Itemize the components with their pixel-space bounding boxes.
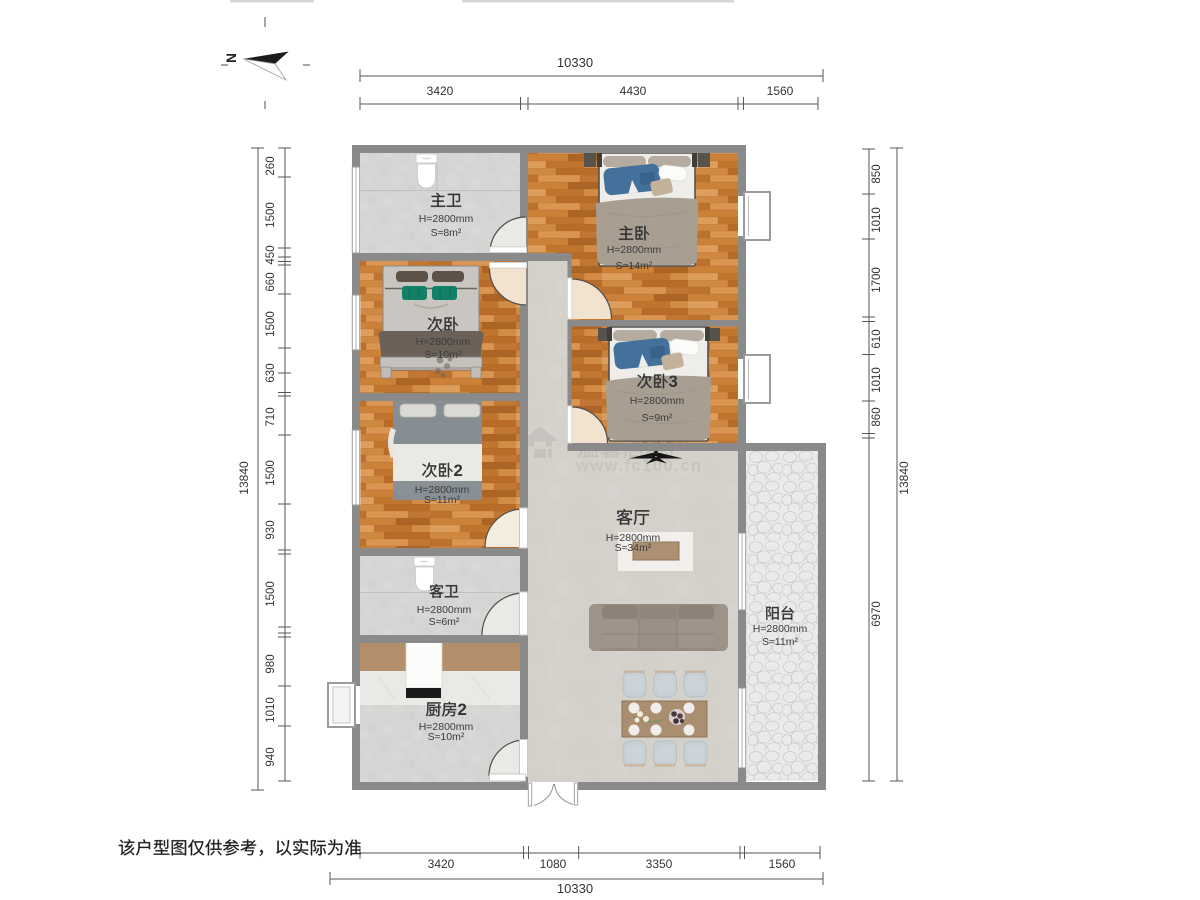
svg-text:S≈10m²: S≈10m² [428, 731, 465, 743]
svg-text:1500: 1500 [265, 581, 277, 607]
svg-text:980: 980 [265, 654, 277, 673]
svg-text:H=2800mm: H=2800mm [419, 213, 474, 225]
svg-text:S≈10m²: S≈10m² [425, 349, 462, 361]
svg-text:S≈9m²: S≈9m² [642, 412, 673, 424]
svg-text:S≈8m²: S≈8m² [431, 227, 462, 239]
svg-text:S≈14m²: S≈14m² [616, 260, 653, 272]
svg-text:1500: 1500 [265, 311, 277, 337]
svg-text:1700: 1700 [871, 267, 883, 293]
svg-text:1500: 1500 [265, 202, 277, 228]
svg-text:450: 450 [265, 245, 277, 264]
svg-text:860: 860 [871, 407, 883, 426]
svg-text:2: 2 [454, 461, 463, 480]
svg-text:S≈11m²: S≈11m² [424, 494, 460, 506]
svg-text:1010: 1010 [265, 697, 277, 723]
svg-text:13840: 13840 [237, 461, 251, 495]
svg-text:260: 260 [265, 156, 277, 175]
svg-text:1010: 1010 [871, 207, 883, 233]
svg-text:1080: 1080 [540, 857, 567, 871]
svg-text:2: 2 [458, 700, 467, 719]
svg-text:660: 660 [265, 272, 277, 291]
svg-text:630: 630 [265, 363, 277, 382]
svg-text:N: N [224, 53, 239, 63]
svg-text:710: 710 [265, 407, 277, 426]
svg-text:S≈11m²: S≈11m² [762, 636, 798, 648]
svg-text:930: 930 [265, 520, 277, 539]
svg-text:www.fc100.cn: www.fc100.cn [575, 457, 703, 475]
svg-text:13840: 13840 [897, 461, 911, 495]
svg-text:1010: 1010 [871, 367, 883, 393]
svg-text:10330: 10330 [557, 881, 593, 896]
svg-text:S≈6m²: S≈6m² [429, 616, 460, 628]
svg-text:H=2800mm: H=2800mm [630, 395, 685, 407]
svg-text:940: 940 [265, 747, 277, 766]
svg-text:6970: 6970 [871, 601, 883, 627]
svg-text:H=2800mm: H=2800mm [607, 244, 662, 256]
svg-text:4430: 4430 [620, 84, 647, 98]
svg-text:3: 3 [669, 372, 678, 391]
svg-text:H=2800mm: H=2800mm [417, 604, 472, 616]
svg-text:10330: 10330 [557, 55, 593, 70]
svg-text:1560: 1560 [769, 857, 796, 871]
svg-text:H=2800mm: H=2800mm [416, 336, 471, 348]
svg-text:3420: 3420 [427, 84, 454, 98]
svg-text:3420: 3420 [428, 857, 455, 871]
svg-text:1500: 1500 [265, 460, 277, 486]
svg-text:850: 850 [871, 164, 883, 183]
svg-text:1560: 1560 [767, 84, 794, 98]
svg-text:S≈34m²: S≈34m² [615, 542, 652, 554]
svg-text:610: 610 [871, 329, 883, 348]
svg-text:H=2800mm: H=2800mm [753, 623, 808, 635]
svg-text:3350: 3350 [646, 857, 673, 871]
